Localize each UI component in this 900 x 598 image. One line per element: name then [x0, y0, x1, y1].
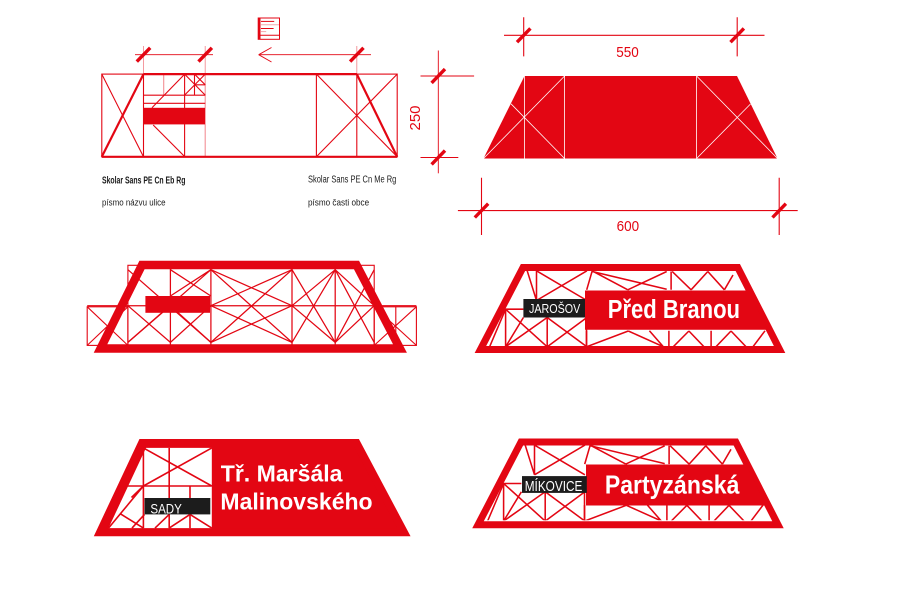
svg-text:250: 250 — [407, 105, 424, 130]
svg-text:Tř. Maršála: Tř. Maršála — [221, 460, 344, 486]
svg-text:Skolar Sans PE Cn Me Rg: Skolar Sans PE Cn Me Rg — [308, 174, 396, 185]
svg-text:písmo časti obce: písmo časti obce — [308, 197, 369, 208]
svg-text:Před Branou: Před Branou — [608, 296, 740, 325]
svg-text:600: 600 — [617, 218, 640, 235]
svg-text:Partyzánská: Partyzánská — [605, 471, 740, 499]
svg-text:SADY: SADY — [150, 500, 182, 516]
svg-text:MÍKOVICE: MÍKOVICE — [525, 478, 583, 494]
svg-text:Skolar Sans PE Cn Eb Rg: Skolar Sans PE Cn Eb Rg — [102, 174, 185, 186]
svg-text:550: 550 — [616, 44, 639, 61]
svg-text:písmo názvu ulice: písmo názvu ulice — [102, 197, 166, 208]
svg-text:Malinovského: Malinovského — [220, 488, 372, 514]
svg-text:JAROŠOV: JAROŠOV — [529, 300, 580, 316]
